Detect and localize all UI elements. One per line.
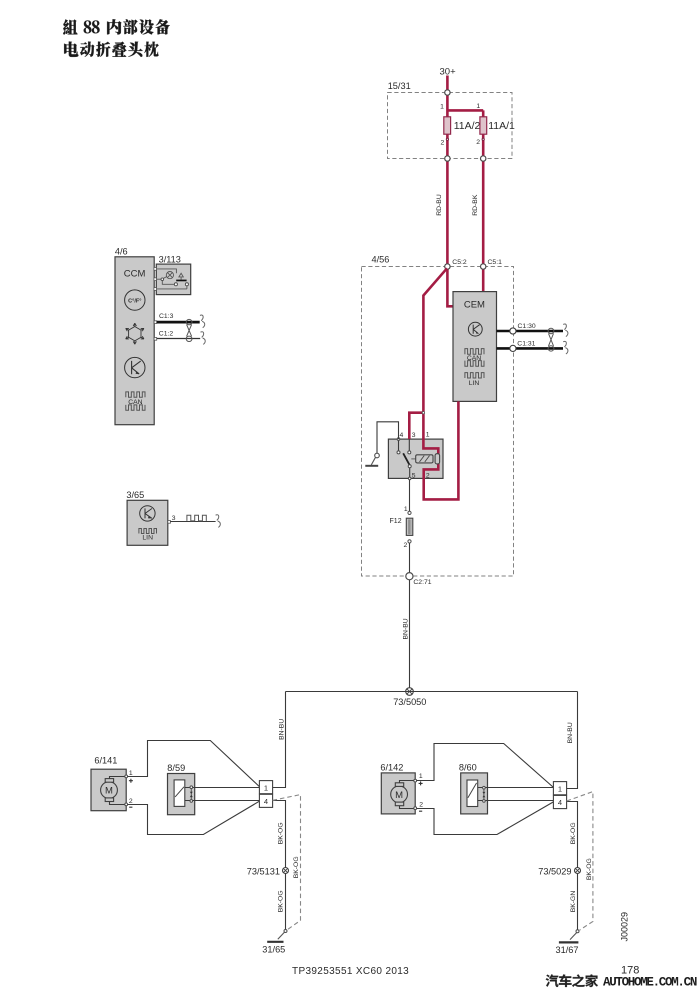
svg-text:11A/2: 11A/2 [454,120,481,132]
svg-text:C1:31: C1:31 [517,341,535,348]
svg-text:2: 2 [419,802,423,809]
svg-text:2: 2 [426,472,430,479]
svg-text:1: 1 [404,506,408,513]
svg-text:3/65: 3/65 [126,490,144,500]
svg-text:4/56: 4/56 [372,255,390,265]
svg-text:C1:3: C1:3 [159,313,174,320]
svg-text:CEM: CEM [464,299,485,310]
svg-text:1: 1 [129,770,133,777]
svg-text:4/6: 4/6 [115,247,128,257]
svg-text:C5:2: C5:2 [452,259,467,266]
svg-text:1: 1 [476,103,480,110]
svg-text:BK-GN: BK-GN [570,891,577,913]
svg-text:2: 2 [404,542,408,549]
svg-text:RD-BU: RD-BU [436,194,443,216]
svg-text:AUTOHOME.COM.CN: AUTOHOME.COM.CN [603,975,697,989]
svg-text:C1:2: C1:2 [159,331,174,338]
svg-text:4: 4 [400,432,404,439]
svg-text:6/142: 6/142 [380,762,403,772]
svg-text:J00029: J00029 [620,912,630,942]
svg-text:1: 1 [426,432,430,439]
svg-text:LIN: LIN [142,534,153,541]
svg-text:LIN: LIN [469,380,480,387]
svg-text:1: 1 [264,783,268,792]
svg-text:31/65: 31/65 [262,945,285,955]
svg-text:73/5029: 73/5029 [538,867,571,877]
svg-text:BK-OG: BK-OG [277,822,284,844]
svg-text:3: 3 [412,432,416,439]
svg-text:RD-BK: RD-BK [472,194,479,216]
svg-text:M: M [395,790,403,801]
svg-text:73/5131: 73/5131 [247,866,280,876]
svg-text:BK-OG: BK-OG [570,822,577,844]
svg-text:TP39253551 XC60 2013: TP39253551 XC60 2013 [292,966,409,977]
svg-text:CCM: CCM [124,269,146,280]
svg-text:2: 2 [476,139,480,146]
svg-text:F12: F12 [390,518,402,525]
svg-text:1: 1 [558,784,562,793]
svg-text:C°/F°: C°/F° [128,298,141,304]
svg-text:M: M [105,786,113,797]
svg-text:4: 4 [264,797,268,806]
svg-text:2: 2 [441,140,445,147]
svg-text:BN-BU: BN-BU [279,719,286,740]
svg-text:8/60: 8/60 [459,762,477,772]
svg-text:BN-BU: BN-BU [403,618,410,639]
svg-text:C2:71: C2:71 [413,579,431,586]
svg-text:1: 1 [440,104,444,111]
svg-text:11A/1: 11A/1 [488,120,515,132]
svg-text:C5:1: C5:1 [488,259,503,266]
svg-text:6/141: 6/141 [94,755,117,765]
svg-text:15/31: 15/31 [388,81,411,91]
svg-text:BN-BU: BN-BU [567,722,574,743]
svg-text:3: 3 [172,515,176,522]
svg-text:5: 5 [412,472,416,479]
svg-text:BK-OG: BK-OG [586,858,593,880]
svg-text:BK-OG: BK-OG [293,856,300,878]
svg-text:BK-OG: BK-OG [277,890,284,912]
svg-text:8/59: 8/59 [167,763,185,773]
svg-text:4: 4 [558,798,562,807]
svg-text:3/113: 3/113 [159,255,181,265]
svg-text:C1:30: C1:30 [518,323,536,330]
svg-text:31/67: 31/67 [556,945,579,955]
svg-text:2: 2 [129,798,133,805]
svg-text:1: 1 [419,773,423,780]
svg-text:73/5050: 73/5050 [393,697,426,707]
